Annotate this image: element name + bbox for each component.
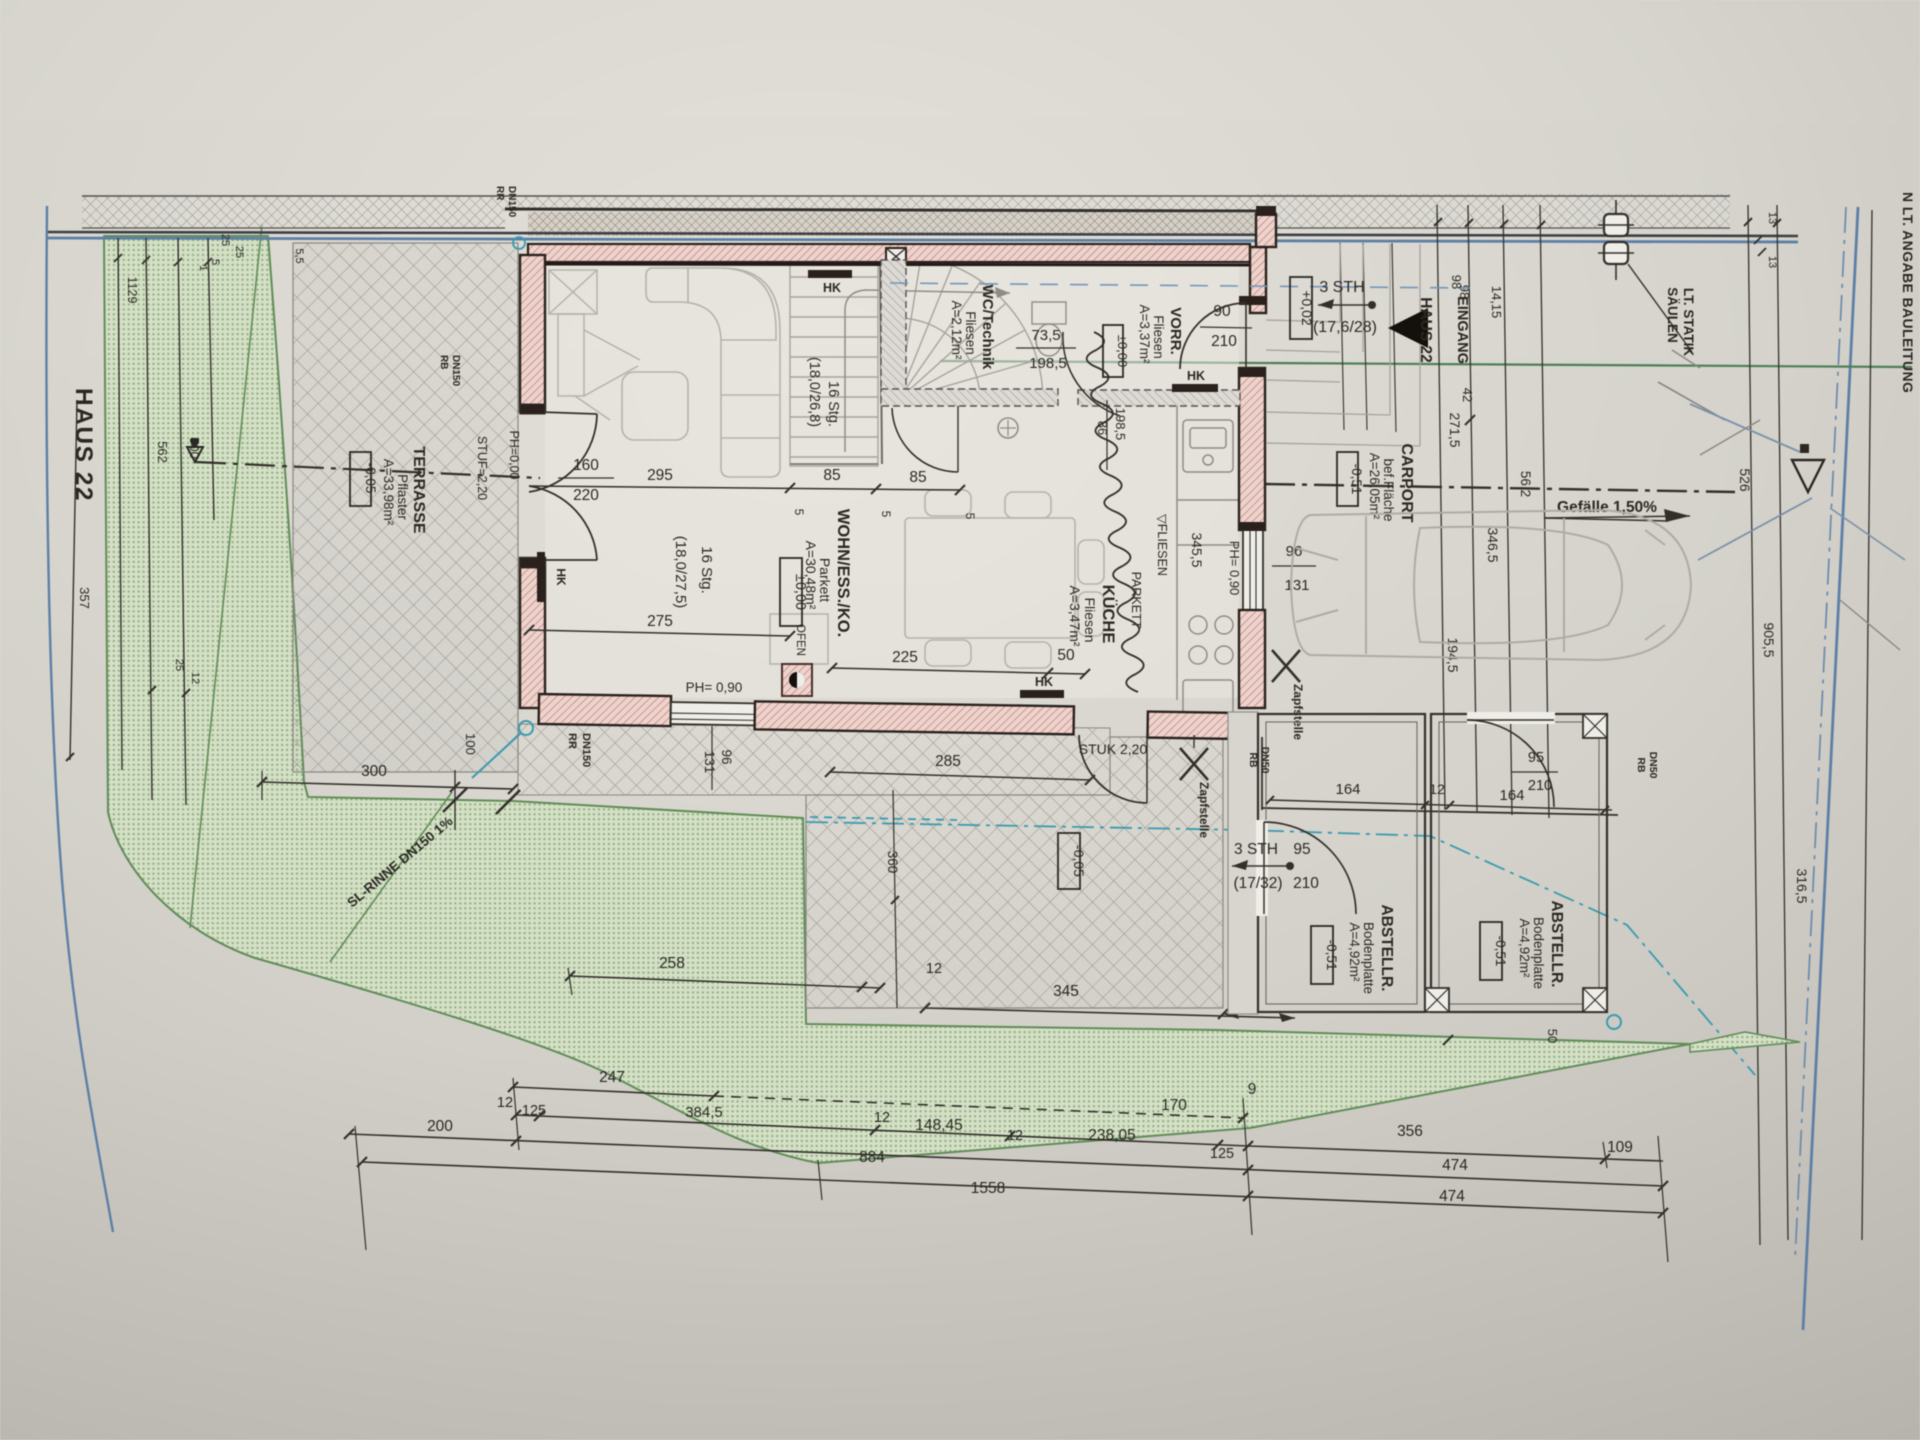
svg-text:170: 170: [1161, 1097, 1187, 1114]
svg-text:100: 100: [463, 733, 478, 755]
svg-text:RR: RR: [566, 733, 578, 749]
svg-text:13: 13: [1766, 212, 1778, 224]
svg-text:247: 247: [599, 1069, 625, 1086]
svg-text:Zapfstelle: Zapfstelle: [1197, 782, 1211, 838]
svg-text:STUK 2,20: STUK 2,20: [1079, 741, 1148, 757]
svg-text:85: 85: [823, 467, 840, 484]
svg-text:384,5: 384,5: [685, 1104, 723, 1121]
svg-text:3 STH: 3 STH: [1234, 841, 1278, 858]
svg-text:345,5: 345,5: [1189, 532, 1205, 567]
svg-text:PARKETT: PARKETT: [1129, 572, 1143, 629]
svg-text:210: 210: [1293, 875, 1319, 892]
svg-text:A=2,12m²: A=2,12m²: [949, 301, 964, 360]
svg-text:RB: RB: [1247, 752, 1259, 768]
svg-text:Bodenplatte: Bodenplatte: [1531, 917, 1546, 989]
svg-text:225: 225: [892, 649, 918, 666]
svg-text:A=4,92m²: A=4,92m²: [1517, 919, 1532, 978]
svg-text:98: 98: [1449, 275, 1464, 289]
svg-text:HK: HK: [823, 281, 841, 295]
svg-text:357: 357: [77, 587, 92, 609]
svg-text:5: 5: [963, 513, 977, 520]
svg-text:356: 356: [1397, 1123, 1423, 1140]
svg-text:HAUS 22: HAUS 22: [70, 388, 97, 502]
svg-text:HK: HK: [554, 568, 568, 586]
svg-text:Zapfstelle: Zapfstelle: [1291, 684, 1305, 740]
svg-text:1: 1: [197, 265, 209, 271]
svg-text:SÄULEN: SÄULEN: [1665, 287, 1680, 343]
svg-text:WOHN/ESS./KO.: WOHN/ESS./KO.: [834, 509, 852, 637]
svg-text:238,05: 238,05: [1088, 1127, 1135, 1144]
svg-text:PH= 0,90: PH= 0,90: [1227, 541, 1242, 596]
svg-text:25: 25: [219, 234, 231, 246]
svg-text:VORR.: VORR.: [1167, 307, 1184, 355]
svg-text:198,5: 198,5: [1113, 408, 1128, 441]
svg-text:25: 25: [173, 659, 185, 671]
svg-text:DN50: DN50: [1647, 752, 1659, 779]
svg-text:148,45: 148,45: [915, 1117, 962, 1134]
svg-text:-0,05: -0,05: [363, 463, 378, 494]
svg-text:Fliesen: Fliesen: [963, 311, 978, 355]
svg-text:Fliesen: Fliesen: [1082, 597, 1098, 642]
svg-text:16 Stg.: 16 Stg.: [825, 381, 841, 427]
svg-text:90: 90: [1213, 303, 1231, 320]
svg-text:STUF=2,20: STUF=2,20: [475, 436, 489, 500]
svg-text:DN150: DN150: [506, 186, 517, 218]
svg-text:131: 131: [1284, 577, 1309, 594]
svg-text:95: 95: [1293, 841, 1310, 858]
svg-text:(17/32): (17/32): [1233, 875, 1282, 892]
svg-text:+0,02: +0,02: [1299, 290, 1315, 326]
svg-text:±0,00: ±0,00: [1115, 335, 1130, 367]
svg-text:73,5: 73,5: [1031, 327, 1060, 344]
svg-text:12: 12: [1429, 781, 1445, 797]
svg-text:474: 474: [1439, 1188, 1465, 1205]
svg-text:200: 200: [427, 1118, 453, 1135]
svg-text:884: 884: [859, 1149, 885, 1166]
svg-text:▽FLIESEN: ▽FLIESEN: [1155, 514, 1169, 576]
svg-text:125: 125: [522, 1103, 546, 1119]
svg-text:PH=0,00: PH=0,00: [507, 431, 521, 480]
svg-text:12: 12: [926, 961, 942, 977]
svg-text:EINGANG: EINGANG: [1454, 296, 1470, 364]
svg-text:5: 5: [792, 509, 806, 516]
svg-text:271,5: 271,5: [1447, 412, 1463, 447]
svg-text:A=3,47m²: A=3,47m²: [1067, 585, 1083, 646]
svg-text:164: 164: [1499, 787, 1524, 804]
svg-text:CARPORT: CARPORT: [1398, 443, 1415, 522]
svg-text:(18,0/27,5): (18,0/27,5): [672, 536, 689, 609]
svg-text:±0,00: ±0,00: [792, 574, 808, 610]
svg-text:OFEN: OFEN: [794, 624, 806, 656]
svg-text:25: 25: [233, 246, 245, 258]
svg-text:HK: HK: [1187, 369, 1205, 383]
svg-text:56,2: 56,2: [1518, 471, 1533, 497]
svg-text:5: 5: [209, 259, 221, 265]
svg-text:300: 300: [361, 763, 387, 780]
svg-text:95: 95: [1528, 750, 1544, 766]
svg-text:285: 285: [935, 753, 961, 770]
svg-text:DN150: DN150: [450, 355, 461, 387]
svg-text:Fliesen: Fliesen: [1151, 315, 1166, 359]
svg-text:85: 85: [909, 469, 926, 486]
svg-text:ABSTELLR.: ABSTELLR.: [1378, 905, 1395, 992]
svg-text:(17,6/28): (17,6/28): [1313, 319, 1377, 336]
svg-text:9: 9: [1248, 1081, 1257, 1098]
svg-text:-0,51: -0,51: [1493, 936, 1508, 967]
svg-text:125: 125: [1210, 1146, 1234, 1162]
svg-text:KÜCHE: KÜCHE: [1099, 585, 1118, 644]
svg-text:905,5: 905,5: [1761, 622, 1777, 657]
svg-text:346,5: 346,5: [1485, 527, 1501, 562]
svg-text:12: 12: [189, 672, 201, 684]
svg-text:316,5: 316,5: [1794, 868, 1810, 903]
svg-text:198,5: 198,5: [1029, 355, 1067, 372]
svg-text:Gefälle 1,50%: Gefälle 1,50%: [1557, 499, 1657, 516]
svg-text:295: 295: [647, 467, 673, 484]
svg-text:A=3,37m²: A=3,37m²: [1137, 305, 1152, 364]
svg-text:3 STH: 3 STH: [1319, 279, 1364, 296]
svg-text:12: 12: [1007, 1128, 1023, 1144]
svg-text:160: 160: [573, 457, 599, 474]
svg-text:258: 258: [659, 955, 685, 972]
svg-text:-0,51: -0,51: [1324, 940, 1339, 971]
svg-text:1558: 1558: [971, 1180, 1005, 1197]
svg-text:164: 164: [1335, 781, 1360, 798]
svg-text:220: 220: [573, 487, 599, 504]
svg-text:PH= 0,90: PH= 0,90: [686, 680, 743, 695]
svg-text:5: 5: [879, 511, 893, 518]
svg-text:50: 50: [1545, 1029, 1560, 1043]
svg-text:12: 12: [497, 1095, 513, 1111]
svg-text:-0,51: -0,51: [1349, 464, 1364, 495]
svg-text:526: 526: [1737, 468, 1753, 492]
svg-text:WC/Technik: WC/Technik: [979, 285, 996, 370]
svg-text:(18,0/26,8): (18,0/26,8): [806, 357, 822, 427]
svg-text:131: 131: [702, 751, 717, 774]
svg-text:Pflaster: Pflaster: [395, 474, 410, 520]
svg-text:50: 50: [1057, 647, 1075, 664]
svg-text:TERRASSE: TERRASSE: [410, 446, 427, 533]
svg-text:A=4,92m²: A=4,92m²: [1347, 923, 1362, 982]
svg-text:14,15: 14,15: [1489, 286, 1504, 319]
svg-text:16 Stg.: 16 Stg.: [698, 546, 715, 594]
svg-text:bef.Fläche: bef.Fläche: [1381, 458, 1396, 521]
svg-text:RB: RB: [1635, 757, 1647, 773]
svg-text:DN150: DN150: [580, 733, 592, 767]
svg-text:DN50: DN50: [1259, 747, 1271, 774]
svg-text:86: 86: [1095, 421, 1110, 435]
svg-text:42: 42: [1460, 388, 1475, 402]
svg-text:Parkett: Parkett: [817, 558, 833, 602]
svg-text:13: 13: [1766, 256, 1778, 268]
svg-text:A=33,98m²: A=33,98m²: [381, 459, 396, 526]
svg-text:345: 345: [1053, 983, 1079, 1000]
svg-text:474: 474: [1442, 1157, 1468, 1174]
svg-text:210: 210: [1211, 333, 1237, 350]
svg-text:RB: RB: [438, 355, 449, 369]
svg-text:1129: 1129: [125, 277, 139, 304]
svg-text:275: 275: [647, 613, 673, 630]
svg-text:210: 210: [1528, 778, 1552, 794]
svg-text:N LT. ANGABE BAULEITUNG: N LT. ANGABE BAULEITUNG: [1900, 192, 1916, 393]
svg-text:12: 12: [874, 1110, 890, 1126]
svg-text:360: 360: [885, 851, 900, 874]
svg-text:RR: RR: [494, 186, 505, 201]
svg-text:562: 562: [155, 441, 170, 463]
svg-text:96: 96: [719, 749, 734, 764]
svg-text:A=26,05m²: A=26,05m²: [1367, 453, 1382, 520]
svg-text:-0,05: -0,05: [1071, 845, 1087, 877]
svg-text:ABSTELLR.: ABSTELLR.: [1548, 901, 1565, 988]
svg-text:Bodenplatte: Bodenplatte: [1361, 922, 1376, 994]
svg-text:HAUS 22: HAUS 22: [1417, 297, 1434, 362]
svg-text:109: 109: [1607, 1139, 1633, 1156]
svg-text:5,5: 5,5: [293, 248, 305, 263]
